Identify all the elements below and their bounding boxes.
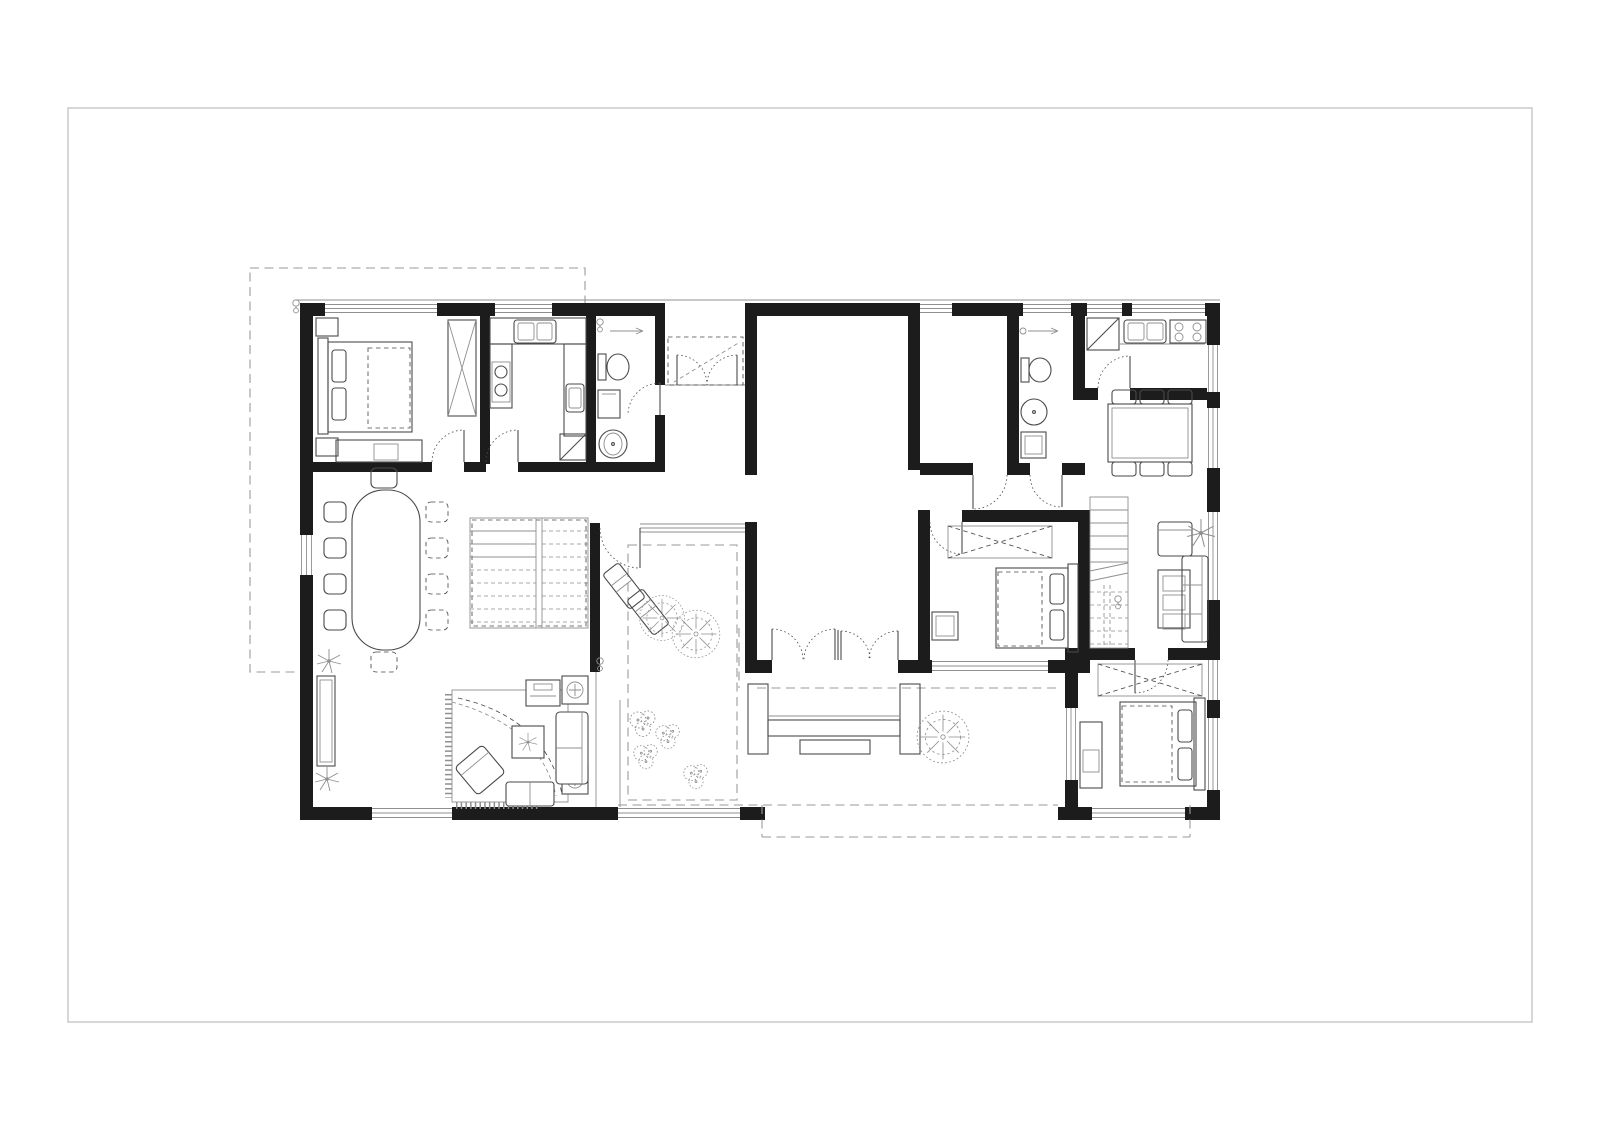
bench-icon [506,782,554,806]
tv-console-icon [526,680,560,706]
speaker-icon [562,676,588,704]
floor-plan-drawing [0,0,1600,1130]
sofa-icon [556,712,588,784]
drawing-sheet [0,0,1600,1130]
coffee-table-icon [512,726,544,758]
